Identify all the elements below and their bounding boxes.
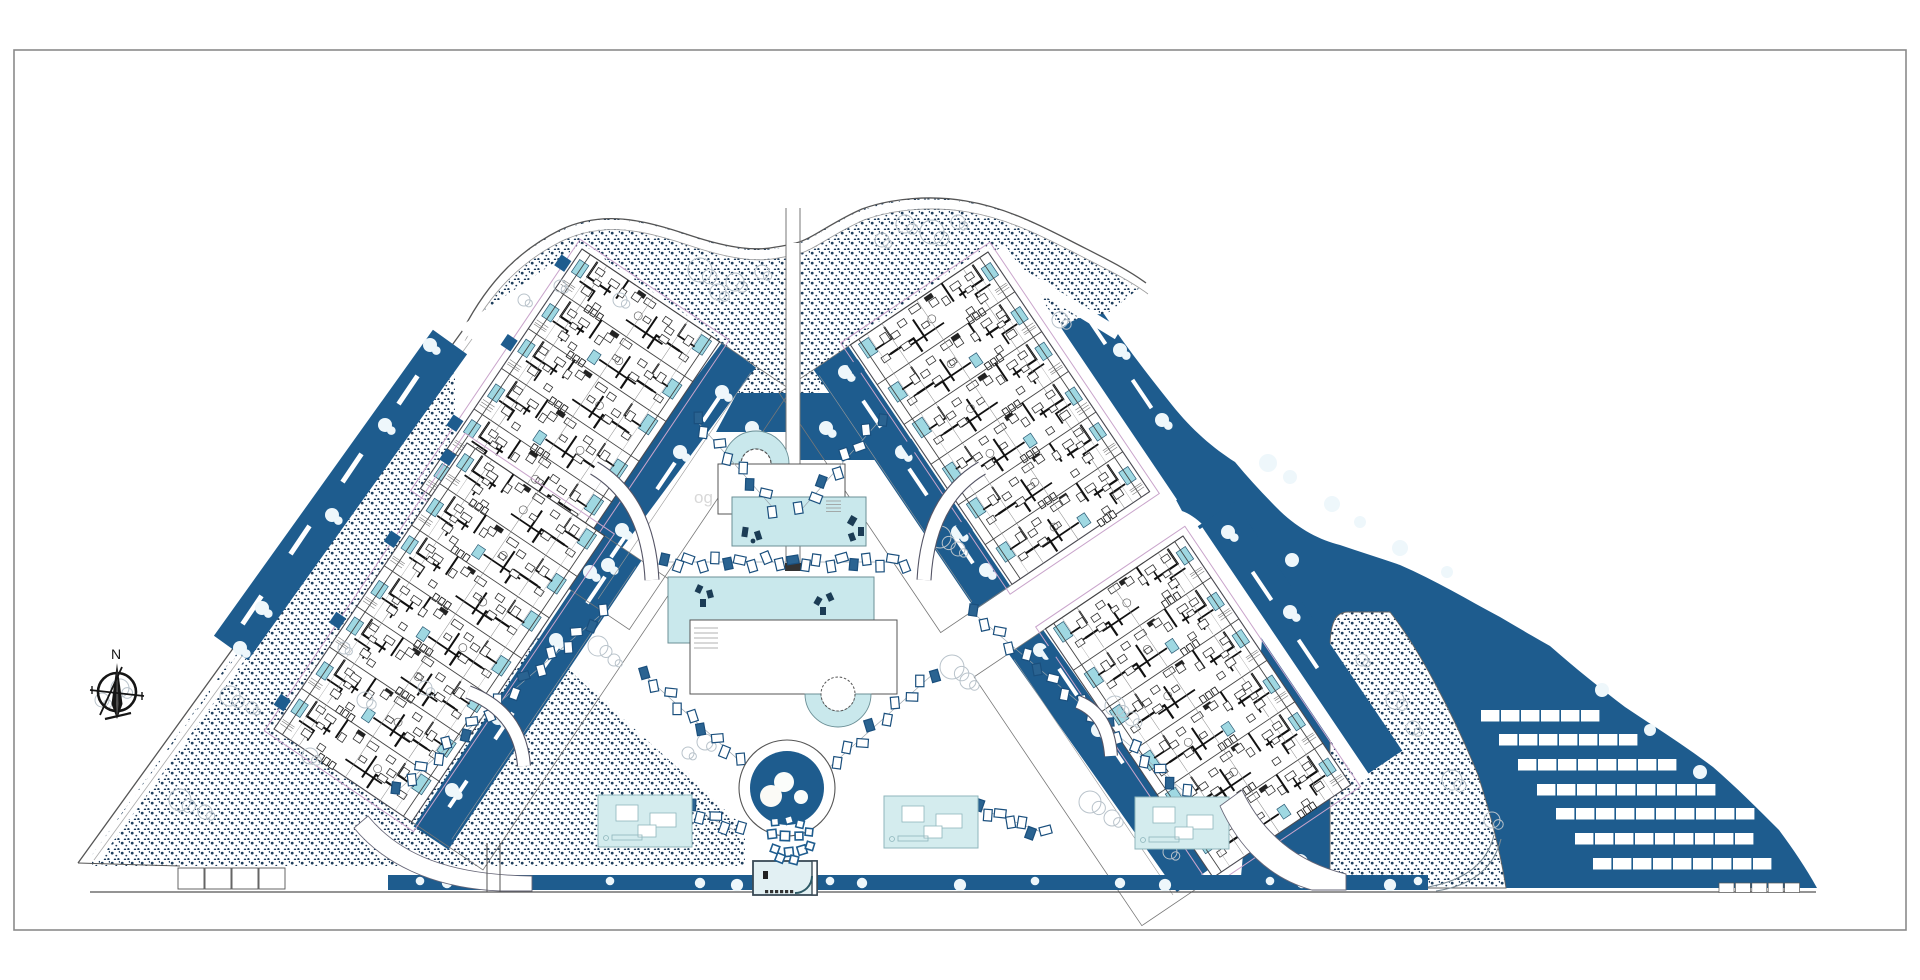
svg-text:og: og (694, 488, 713, 507)
svg-text:N: N (111, 646, 121, 662)
